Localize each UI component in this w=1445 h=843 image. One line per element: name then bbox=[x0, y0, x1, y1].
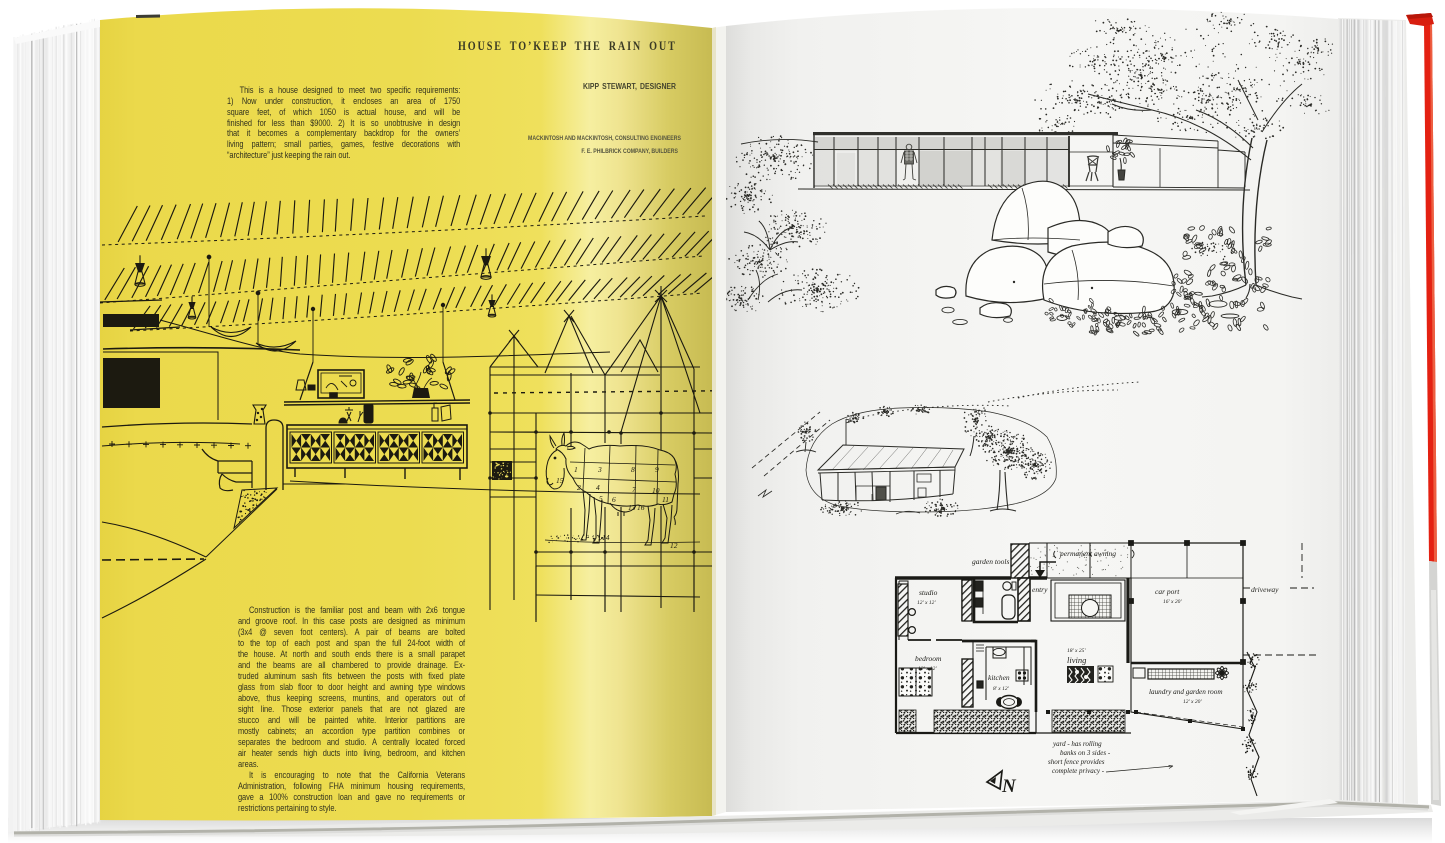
svg-text:entry: entry bbox=[1032, 585, 1048, 594]
svg-text:12' x 12': 12' x 12' bbox=[918, 666, 937, 672]
svg-text:permanent awning: permanent awning bbox=[1059, 549, 1116, 558]
svg-text:banks on 3 sides -: banks on 3 sides - bbox=[1060, 749, 1111, 757]
svg-text:7: 7 bbox=[632, 485, 636, 494]
svg-text:living: living bbox=[1067, 655, 1086, 665]
svg-text:9: 9 bbox=[655, 465, 659, 474]
svg-text:11: 11 bbox=[662, 495, 669, 504]
svg-text:complete privacy -: complete privacy - bbox=[1052, 767, 1105, 775]
svg-text:driveway: driveway bbox=[1251, 585, 1279, 594]
svg-text:2: 2 bbox=[577, 483, 581, 492]
svg-text:16' x 20': 16' x 20' bbox=[1163, 599, 1182, 605]
svg-text:8' x 12': 8' x 12' bbox=[993, 686, 1010, 692]
svg-text:kitchen: kitchen bbox=[988, 673, 1010, 682]
svg-text:studio: studio bbox=[919, 588, 938, 597]
svg-text:laundry and garden room: laundry and garden room bbox=[1149, 688, 1223, 696]
svg-text:18' x 25': 18' x 25' bbox=[1067, 648, 1086, 654]
svg-text:3: 3 bbox=[597, 465, 602, 474]
svg-text:car port: car port bbox=[1155, 587, 1180, 596]
svg-text:10: 10 bbox=[652, 486, 660, 495]
svg-text:16: 16 bbox=[637, 503, 645, 512]
svg-text:garden tools: garden tools bbox=[972, 557, 1010, 566]
svg-text:12' x 12': 12' x 12' bbox=[917, 600, 936, 606]
svg-text:12' x 20': 12' x 20' bbox=[1183, 699, 1202, 705]
svg-text:14: 14 bbox=[602, 533, 610, 542]
svg-text:N: N bbox=[1001, 776, 1017, 797]
svg-text:5: 5 bbox=[599, 494, 603, 503]
svg-text:1: 1 bbox=[574, 465, 578, 474]
svg-text:6: 6 bbox=[612, 495, 616, 504]
svg-text:bedroom: bedroom bbox=[915, 654, 942, 663]
svg-text:8: 8 bbox=[631, 465, 635, 474]
svg-text:13: 13 bbox=[628, 503, 636, 512]
svg-text:15: 15 bbox=[556, 476, 564, 485]
svg-text:4: 4 bbox=[596, 483, 600, 492]
svg-text:yard - has rolling: yard - has rolling bbox=[1052, 740, 1102, 748]
svg-text:short fence provides: short fence provides bbox=[1048, 758, 1105, 766]
